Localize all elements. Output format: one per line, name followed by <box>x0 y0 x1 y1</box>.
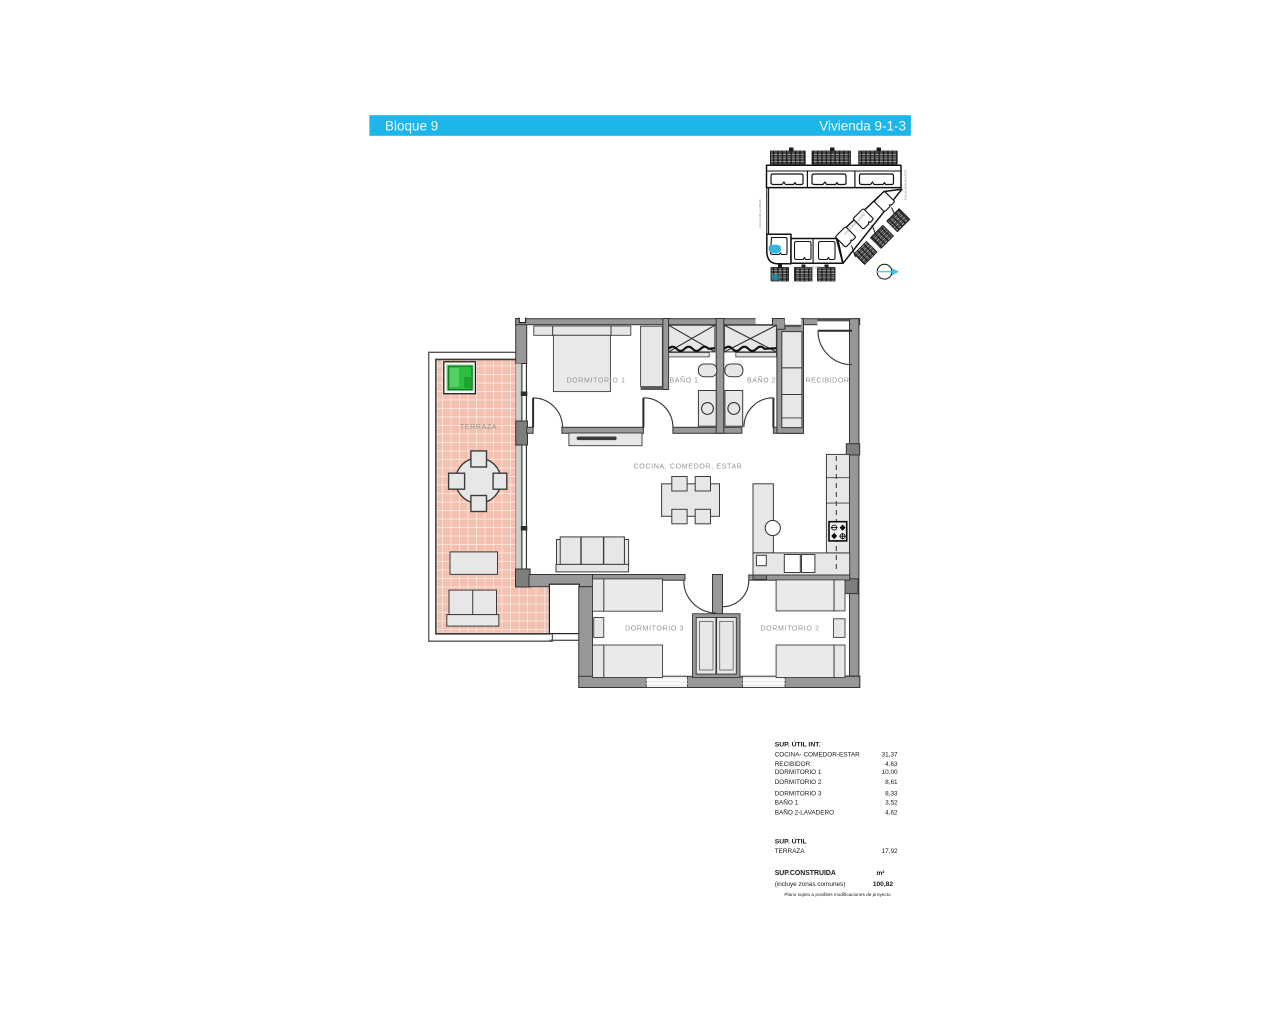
svg-text:Bloque 9: Bloque 9 <box>385 119 438 134</box>
svg-text:DORMITORIO 2: DORMITORIO 2 <box>760 625 819 633</box>
svg-text:SUP.CONSTRUIDA: SUP.CONSTRUIDA <box>775 870 836 877</box>
svg-text:CALLE DE LA RIOJA: CALLE DE LA RIOJA <box>758 199 762 228</box>
svg-text:(incluye zonas comunes): (incluye zonas comunes) <box>775 881 846 888</box>
svg-text:DORMITORIO 2: DORMITORIO 2 <box>775 779 822 786</box>
svg-text:3,52: 3,52 <box>885 800 898 807</box>
svg-text:TERRAZA: TERRAZA <box>775 848 806 855</box>
svg-text:COCINA- COMEDOR-ESTAR: COCINA- COMEDOR-ESTAR <box>775 752 860 759</box>
svg-text:4,63: 4,63 <box>885 761 898 768</box>
svg-text:BAÑO 2-LAVADERO: BAÑO 2-LAVADERO <box>775 808 834 817</box>
svg-text:CALLE MAR MENOR: CALLE MAR MENOR <box>797 265 827 269</box>
svg-text:DORMITORIO 3: DORMITORIO 3 <box>775 791 822 798</box>
svg-text:8,33: 8,33 <box>885 791 898 798</box>
svg-text:BAÑO 1: BAÑO 1 <box>775 798 799 807</box>
svg-text:100,82: 100,82 <box>873 881 894 888</box>
svg-text:COCINA, COMEDOR, ESTAR: COCINA, COMEDOR, ESTAR <box>634 463 743 471</box>
svg-text:TERRAZA: TERRAZA <box>460 423 497 431</box>
svg-text:DORMITORIO 1: DORMITORIO 1 <box>775 769 822 776</box>
svg-text:m²: m² <box>876 870 885 877</box>
svg-text:RECIBIDOR: RECIBIDOR <box>806 377 850 385</box>
svg-text:Plano sujeto a posibles modifi: Plano sujeto a posibles modificaciones d… <box>784 892 891 897</box>
svg-text:8,61: 8,61 <box>885 779 898 786</box>
svg-text:Vivienda 9-1-3: Vivienda 9-1-3 <box>819 119 906 134</box>
svg-text:10,00: 10,00 <box>882 769 898 776</box>
svg-text:RECIBIDOR: RECIBIDOR <box>775 761 811 768</box>
svg-text:CALLE MAR BALTICO: CALLE MAR BALTICO <box>904 169 908 200</box>
svg-text:DORMITORIO 1: DORMITORIO 1 <box>566 377 625 385</box>
svg-text:BAÑO 1: BAÑO 1 <box>669 376 698 385</box>
svg-text:17,92: 17,92 <box>882 848 898 855</box>
svg-text:DORMITORIO 3: DORMITORIO 3 <box>625 625 684 633</box>
svg-text:BAÑO 2: BAÑO 2 <box>747 376 776 385</box>
svg-text:31,37: 31,37 <box>882 752 898 759</box>
svg-text:SUP. ÚTIL INT.: SUP. ÚTIL INT. <box>775 740 821 749</box>
svg-text:SUP. ÚTIL: SUP. ÚTIL <box>775 837 807 846</box>
svg-text:4,62: 4,62 <box>885 810 898 817</box>
